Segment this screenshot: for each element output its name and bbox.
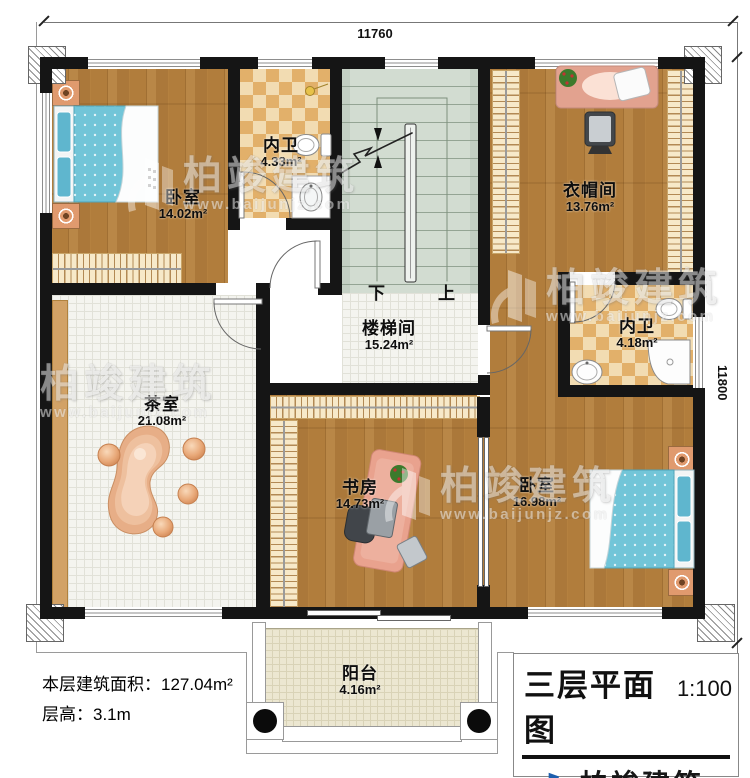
cloakroom-rack-left xyxy=(492,70,520,254)
wall-study-bedroom2-stub-bottom xyxy=(477,585,490,607)
room-area: 14.02m² xyxy=(159,207,207,221)
frame-line-bottom-mid xyxy=(497,652,514,653)
room-area: 4.18m² xyxy=(616,336,657,350)
balcony-sliding-door xyxy=(307,610,381,616)
drawing-title: 三层平面图 xyxy=(524,660,665,750)
footer-height-value: 3.1m xyxy=(93,705,131,724)
room-area: 14.73m² xyxy=(336,497,384,511)
wall-study-bedroom2-stub-top xyxy=(477,397,490,437)
drawing-scale: 1:100 xyxy=(677,676,732,702)
frame-line-bottom-left xyxy=(36,652,247,653)
window-stairs-top xyxy=(385,57,438,69)
right-dimension-line xyxy=(737,22,738,653)
watermark-logo-icon xyxy=(0,358,34,430)
right-dimension-value: 11800 xyxy=(715,365,730,400)
floor-plan-canvas: 11760 11800 xyxy=(0,0,750,778)
top-dimension-value: 11760 xyxy=(343,26,407,41)
footer-area-line: 本层建筑面积：127.04m² xyxy=(42,670,233,700)
window-bedroom1-top xyxy=(88,57,200,69)
cloakroom-rack-right xyxy=(667,70,695,274)
room-name: 书房 xyxy=(336,479,384,497)
label-balcony: 阳台 4.16m² xyxy=(339,665,380,697)
brand-name: 柏竣建筑 xyxy=(580,770,725,778)
room-area: 16.98m² xyxy=(513,495,561,509)
wall-bath2-top xyxy=(615,272,693,285)
label-bedroom2: 卧室 16.98m² xyxy=(513,477,561,509)
balcony-column xyxy=(246,702,284,740)
room-name: 卧室 xyxy=(159,189,207,207)
label-stairwell: 楼梯间 15.24m² xyxy=(362,320,416,352)
tearoom-floor xyxy=(52,295,256,607)
top-dimension-line xyxy=(44,22,738,23)
wall-stair-right-upper xyxy=(478,69,490,325)
wall-bath2-bottom xyxy=(558,385,693,397)
room-name: 阳台 xyxy=(339,665,380,683)
balcony-rail-bottom xyxy=(282,726,462,742)
stairs-down-label: 下 xyxy=(368,279,385,304)
stairs-up-label: 上 xyxy=(438,279,455,304)
room-name: 卧室 xyxy=(513,477,561,495)
brand-logo-icon xyxy=(532,767,574,778)
footer-info: 本层建筑面积：127.04m² 层高：3.1m xyxy=(42,670,233,730)
frame-line-left xyxy=(36,22,37,652)
study-bedroom2-sliding-door xyxy=(478,437,483,587)
nightstand xyxy=(668,446,696,473)
dim-tick xyxy=(38,15,49,26)
study-rack-top xyxy=(270,396,480,419)
wall-stair-bottom xyxy=(270,383,490,395)
wall-stair-left xyxy=(330,69,342,295)
wall-bedroom1-bath1 xyxy=(228,69,240,230)
wall-bedroom1-bottom xyxy=(40,283,216,295)
window-bedroom1-left xyxy=(40,93,52,213)
room-area: 4.16m² xyxy=(339,683,380,697)
label-tearoom: 茶室 21.08m² xyxy=(138,396,186,428)
footer-area-label: 本层建筑面积： xyxy=(42,675,161,694)
room-name: 衣帽间 xyxy=(563,182,617,200)
room-area: 21.08m² xyxy=(138,414,186,428)
cloakroom-floor xyxy=(490,69,693,272)
label-bathroom2: 内卫 4.18m² xyxy=(616,318,657,350)
room-name: 内卫 xyxy=(616,318,657,336)
study-rack-left xyxy=(270,420,298,610)
tearoom-ledge xyxy=(52,300,68,609)
room-area: 4.33m² xyxy=(260,155,301,169)
wall-tearoom-study xyxy=(256,283,270,619)
label-cloakroom: 衣帽间 13.76m² xyxy=(563,182,617,214)
stairs-floor xyxy=(342,69,478,293)
window-bedroom2-bottom xyxy=(528,607,662,619)
label-bedroom1: 卧室 14.02m² xyxy=(159,189,207,221)
footer-height-label: 层高： xyxy=(42,705,93,724)
study-bedroom2-sliding-door xyxy=(484,437,489,587)
room-area: 15.24m² xyxy=(362,338,416,352)
bedroom1-wardrobe xyxy=(52,253,182,285)
window-bath2-right xyxy=(693,317,705,388)
room-name: 茶室 xyxy=(138,396,186,414)
wall-bath2-left xyxy=(558,285,570,397)
balcony-rail-left xyxy=(252,622,266,708)
window-bath1-top xyxy=(258,57,312,69)
room-area: 13.76m² xyxy=(563,200,617,214)
label-bathroom1: 内卫 4.33m² xyxy=(260,137,301,169)
window-tearoom-bottom xyxy=(85,607,222,619)
nightstand xyxy=(668,569,696,596)
room-name: 楼梯间 xyxy=(362,320,416,338)
label-study: 书房 14.73m² xyxy=(336,479,384,511)
corridor-floor xyxy=(490,272,558,397)
frame-line-under-balcony xyxy=(246,753,498,754)
title-block: 三层平面图 1:100 柏竣建筑 www.baijunjz.com xyxy=(513,653,739,777)
footer-height-line: 层高：3.1m xyxy=(42,700,233,730)
balcony-rail-right xyxy=(478,622,492,708)
wall-bath2-top-left xyxy=(558,272,570,285)
window-cloakroom-top xyxy=(535,57,658,69)
balcony-column xyxy=(460,702,498,740)
footer-area-value: 127.04m² xyxy=(161,675,233,694)
nightstand xyxy=(52,203,80,229)
balcony-sliding-door xyxy=(377,615,451,621)
wall-bedroom1-bottom-stub xyxy=(318,283,342,295)
room-name: 内卫 xyxy=(260,137,301,155)
